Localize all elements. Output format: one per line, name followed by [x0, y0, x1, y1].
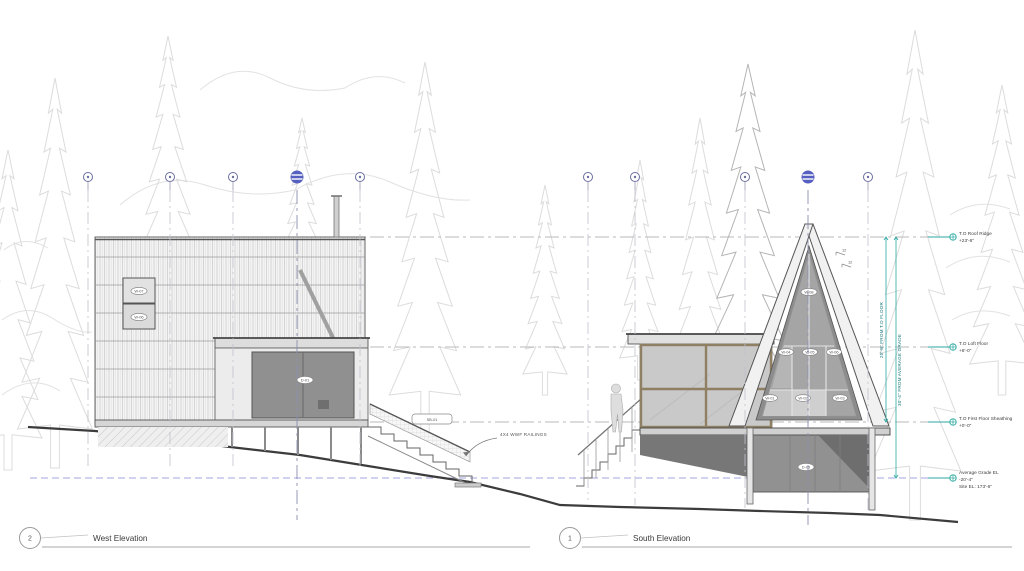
crawl-space: [640, 435, 753, 478]
a-frame: 12 12 W-08 W-04 W-05 W-06 W-01 W-02 W-03: [729, 224, 889, 426]
stair-tag-label: SB-01: [427, 417, 438, 422]
lattice-skirt: [98, 427, 228, 447]
window-tag-label: W-06: [134, 315, 143, 320]
pitch-label: 12: [842, 248, 846, 253]
south-elevation-view: 12 12 W-08 W-04 W-05 W-06 W-01 W-02 W-03: [576, 224, 890, 510]
view-number: 2: [28, 536, 32, 543]
lower-level: D-05: [747, 428, 875, 510]
level-elevation: -20'-4": [959, 477, 973, 483]
height-dimensions: 25'-8" FROM T.O FLOOR 30'-4" FROM AVERAG…: [879, 237, 902, 478]
view-title-west: 2 West Elevation: [20, 528, 531, 549]
view-title-south: 1 South Elevation: [560, 528, 1013, 549]
datum-pins: [84, 173, 873, 191]
chimney-flue: [334, 196, 339, 237]
west-floor-band: [95, 420, 368, 427]
svg-text:W-03: W-03: [835, 396, 844, 401]
dim-ridge-to-grade: 30'-4" FROM AVERAGE GRADE: [897, 334, 902, 406]
level-elevation: +0'-0": [959, 423, 972, 429]
svg-text:W-02: W-02: [798, 396, 807, 401]
west-wing: D-01: [213, 338, 370, 420]
view-title: West Elevation: [93, 534, 148, 543]
level-elevation: +8'-0": [959, 348, 972, 354]
level-first-floor: T.O First Floor Sheathing +0'-0": [959, 416, 1013, 429]
south-floor-band: [640, 428, 890, 435]
view-title: South Elevation: [633, 534, 691, 543]
post: [869, 428, 875, 510]
window-tag-label: W-07: [134, 289, 143, 294]
garage-door-tag-label: D-05: [802, 465, 810, 470]
post: [747, 428, 753, 504]
level-name: T.O Loft Floor: [959, 341, 988, 347]
level-name: T.O Roof Ridge: [959, 231, 992, 237]
svg-text:W-01: W-01: [765, 396, 774, 401]
svg-text:W-04: W-04: [781, 350, 791, 355]
svg-text:W-06: W-06: [829, 350, 838, 355]
railing-note: 4X4 WWF RAILINGS: [463, 432, 547, 456]
level-elevation: +23'-6": [959, 238, 974, 244]
level-name: Average Grade EL: [959, 470, 999, 476]
svg-text:W-08: W-08: [804, 290, 813, 295]
drawing-sheet: W-07 W-06 D-01: [0, 0, 1024, 571]
railing-note-label: 4X4 WWF RAILINGS: [500, 432, 547, 437]
person-silhouette: [611, 384, 623, 432]
roof-pitch-annotation: 12 12: [836, 248, 852, 268]
site-elevation: Site EL: 173'-6": [959, 484, 992, 490]
west-elevation-view: W-07 W-06 D-01: [95, 196, 481, 487]
level-name: T.O First Floor Sheathing: [959, 416, 1013, 422]
elevation-drawing: W-07 W-06 D-01: [0, 0, 1024, 571]
dim-ridge-to-floor: 25'-8" FROM T.O FLOOR: [879, 301, 884, 358]
south-stairs: [576, 398, 642, 486]
chair-silhouette: [318, 400, 329, 409]
level-roof-ridge: T.O Roof Ridge +23'-6": [959, 231, 992, 244]
pitch-label: 12: [848, 260, 852, 265]
level-loft-floor: T.O Loft Floor +8'-0": [959, 341, 988, 354]
level-labels: T.O Roof Ridge +23'-6" T.O Loft Floor +8…: [928, 231, 1013, 490]
svg-text:W-05: W-05: [805, 350, 814, 355]
west-windows: W-07 W-06: [123, 278, 155, 329]
door-tag-label: D-01: [301, 378, 309, 383]
level-average-grade: Average Grade EL -20'-4" Site EL: 173'-6…: [959, 470, 999, 490]
view-number: 1: [568, 536, 572, 543]
